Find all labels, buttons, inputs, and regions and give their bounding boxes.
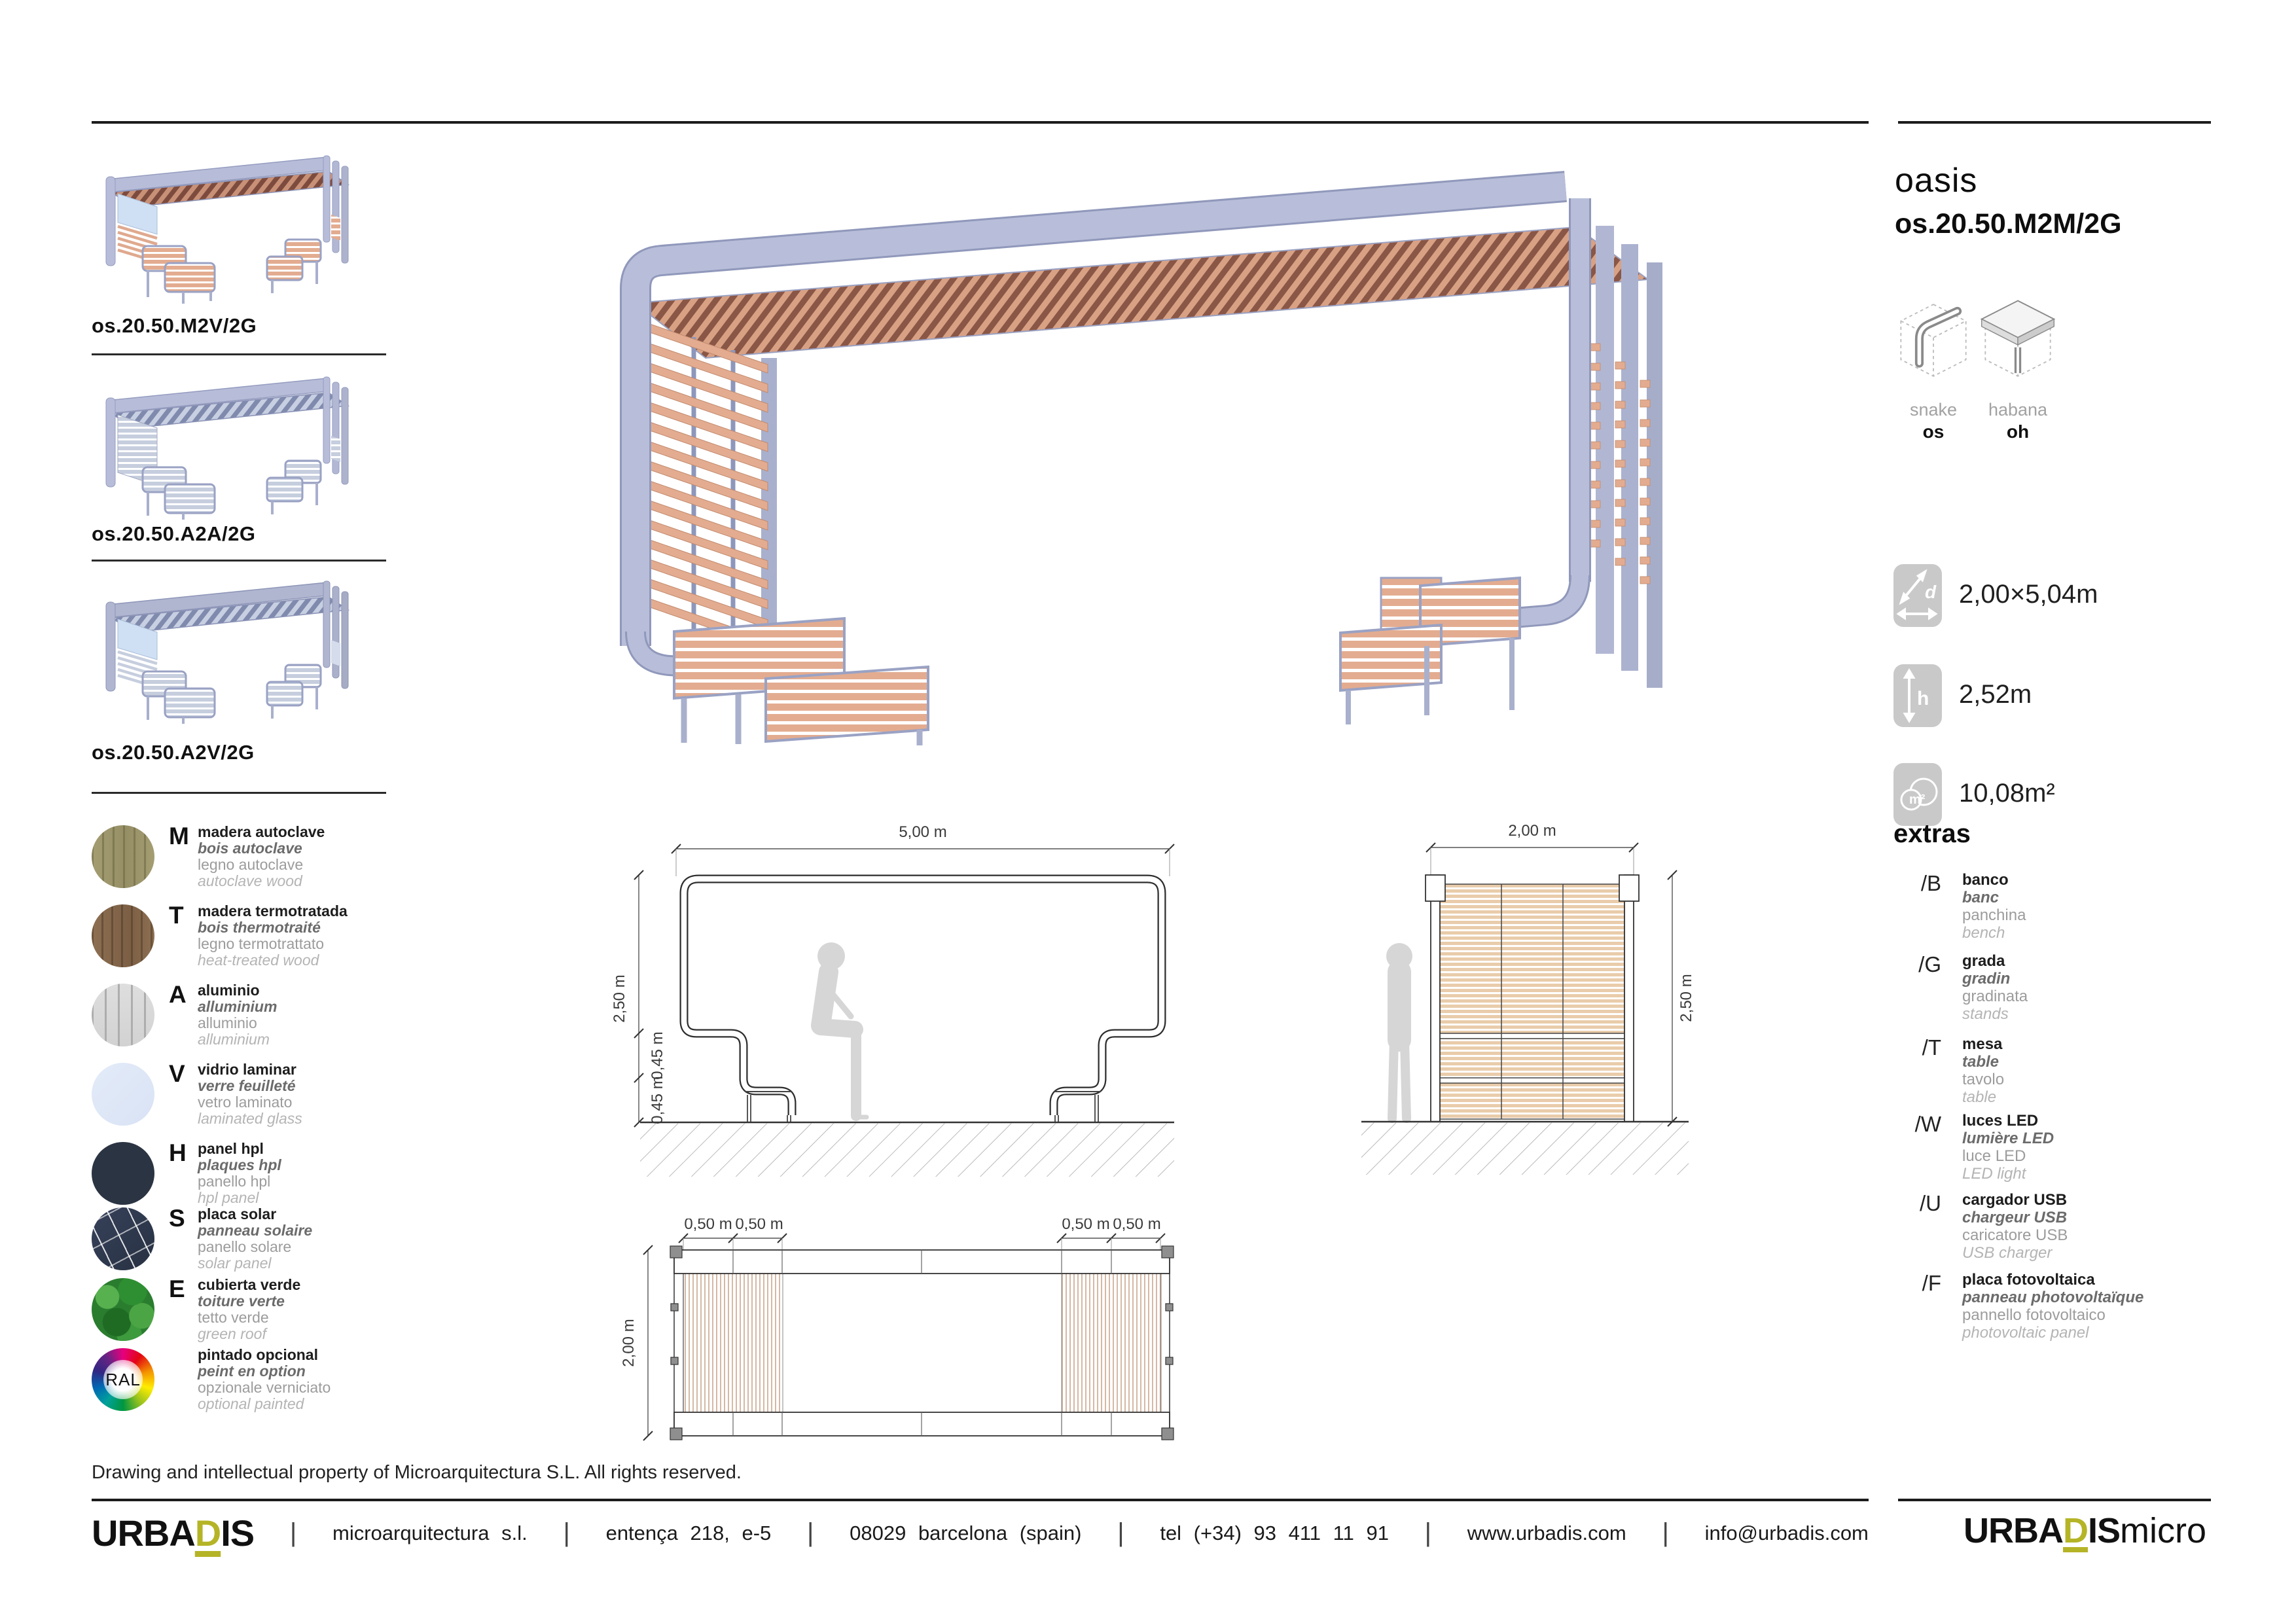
material-ral-paint: RAL pintado opcional peint en option opz… <box>92 1348 458 1414</box>
family-snake-code: os <box>1893 421 1973 442</box>
plan-slat-zone-right <box>1062 1274 1161 1412</box>
side-width-dim: 2,00 m <box>1508 822 1556 840</box>
family-snake-name: snake <box>1893 400 1973 420</box>
variant-thumbnail-a2v <box>92 568 386 728</box>
family-habana: habana oh <box>1978 296 2058 442</box>
datasheet-page: os.20.50.M2V/2G <box>0 0 2296 1623</box>
variant-rule-2 <box>92 560 386 562</box>
extra-line: USB charger <box>1962 1244 2068 1262</box>
footer-separator: | <box>1662 1518 1668 1548</box>
extra-line: panchina <box>1962 906 2026 924</box>
material-line: plaques hpl <box>198 1157 281 1173</box>
footer-city: 08029 barcelona (spain) <box>850 1522 1081 1545</box>
footer-rule-right <box>1898 1499 2211 1501</box>
footer-address: entença 218, e-5 <box>606 1522 772 1545</box>
extra-line: caricatore USB <box>1962 1226 2068 1244</box>
material-line: pintado opcional <box>198 1347 331 1363</box>
variant-render-a2v-image <box>92 568 386 725</box>
extra-line: banc <box>1962 889 2026 906</box>
wood-heat-swatch <box>92 904 154 967</box>
front-elevation-drawing: 5,00 m 2,50 m 0,45 m 0,45 m <box>602 821 1191 1181</box>
render-left-slats <box>650 324 768 648</box>
material-line: green roof <box>198 1326 300 1342</box>
material-aluminium: A aluminio alluminium alluminio allumini… <box>92 984 458 1049</box>
material-laminated-glass: V vidrio laminar verre feuilleté vetro l… <box>92 1063 458 1128</box>
footer-separator: | <box>1425 1518 1431 1548</box>
front-frame-outline <box>684 879 1162 1115</box>
extra-photovoltaic-code: /F <box>1885 1271 1941 1296</box>
extra-line: LED light <box>1962 1165 2054 1183</box>
extra-line: gradinata <box>1962 988 2028 1005</box>
footer-rule-main <box>92 1499 1869 1501</box>
spec-footprint-value: 2,00×5,04m <box>1959 580 2098 609</box>
side-slat-panel-lower <box>1440 1083 1624 1119</box>
material-line: hpl panel <box>198 1190 281 1206</box>
material-line: madera termotratada <box>198 903 348 919</box>
top-rule-right <box>1898 121 2211 124</box>
variant-label-m2v: os.20.50.M2V/2G <box>92 314 257 338</box>
extra-line: chargeur USB <box>1962 1209 2068 1226</box>
material-line: cubierta verde <box>198 1277 300 1293</box>
front-height-dim: 2,50 m <box>611 974 628 1022</box>
footer-website: www.urbadis.com <box>1467 1522 1626 1545</box>
material-line: optional painted <box>198 1396 331 1412</box>
plan-depth-dim: 2,00 m <box>620 1319 637 1366</box>
side-elevation-drawing: 2,00 m 2,50 m <box>1342 821 1708 1181</box>
front-width-dim: 5,00 m <box>899 823 946 841</box>
front-step1-dim: 0,45 m <box>649 1031 666 1079</box>
footer-company: microarquitectura s.l. <box>332 1522 528 1545</box>
material-solar: S placa solar panneau solaire panello so… <box>92 1207 458 1273</box>
dimensions-icon: d <box>1893 564 1942 627</box>
green-roof-swatch <box>92 1278 154 1341</box>
material-line: solar panel <box>198 1255 312 1272</box>
extra-line: placa fotovoltaica <box>1962 1271 2144 1289</box>
material-line: heat-treated wood <box>198 952 348 969</box>
material-heat-treated-wood: T madera termotratada bois thermotraité … <box>92 904 458 970</box>
variant-rule-3 <box>92 792 386 794</box>
family-habana-code: oh <box>1978 421 2058 442</box>
ral-wheel-swatch: RAL <box>92 1348 154 1411</box>
material-line: panello hpl <box>198 1173 281 1190</box>
material-line: alluminium <box>198 999 277 1015</box>
snake-cube-icon <box>1893 296 1973 394</box>
height-icon: h <box>1893 664 1942 727</box>
footer-separator: | <box>290 1518 296 1548</box>
spec-height-value: 2,52m <box>1959 680 2032 709</box>
material-line: bois autoclave <box>198 840 325 857</box>
extra-line: banco <box>1962 871 2026 889</box>
extra-line: cargador USB <box>1962 1191 2068 1209</box>
variant-render-m2v-image <box>92 136 386 308</box>
glass-swatch <box>92 1063 154 1126</box>
side-slat-panel-upper <box>1440 884 1624 1033</box>
extra-line: panneau photovoltaïque <box>1962 1289 2144 1306</box>
extra-line: luces LED <box>1962 1112 2054 1130</box>
extra-line: mesa <box>1962 1035 2004 1053</box>
extra-table-code: /T <box>1885 1035 1941 1060</box>
plan-mod3-dim: 0,50 m <box>1062 1219 1109 1233</box>
extra-line: lumière LED <box>1962 1130 2054 1147</box>
material-line: tetto verde <box>198 1310 300 1326</box>
material-line: alluminio <box>198 1015 277 1031</box>
material-line: legno autoclave <box>198 857 325 873</box>
extra-stands-code: /G <box>1885 952 1941 977</box>
extra-line: table <box>1962 1088 2004 1106</box>
extra-usb-code: /U <box>1885 1191 1941 1216</box>
solar-swatch <box>92 1207 154 1270</box>
extra-line: stands <box>1962 1005 2028 1023</box>
svg-text:m²: m² <box>1909 793 1926 807</box>
habana-cube-icon <box>1978 296 2058 394</box>
ground-hatch <box>1361 1122 1689 1175</box>
material-line: vidrio laminar <box>198 1061 302 1078</box>
extra-line: grada <box>1962 952 2028 970</box>
material-line: panello solare <box>198 1239 312 1255</box>
front-step2-dim: 0,45 m <box>649 1076 666 1124</box>
main-product-render <box>569 128 1741 746</box>
render-right-bench <box>1340 578 1520 724</box>
variant-thumbnail-m2v <box>92 136 386 311</box>
footer-separator: | <box>807 1518 814 1548</box>
plan-mod1-dim: 0,50 m <box>684 1219 732 1233</box>
top-rule-main <box>92 121 1869 124</box>
family-snake: snake os <box>1893 296 1973 442</box>
variant-label-a2v: os.20.50.A2V/2G <box>92 741 255 764</box>
area-icon: m² <box>1893 763 1942 826</box>
side-height-dim: 2,50 m <box>1677 974 1695 1022</box>
urbadis-micro-logo: URBADISmicro <box>1964 1510 2206 1551</box>
material-line: madera autoclave <box>198 824 325 840</box>
extra-line: tavolo <box>1962 1071 2004 1088</box>
extras-heading: extras <box>1893 819 1971 849</box>
render-left-bench <box>674 618 928 745</box>
ground-hatch <box>640 1123 1174 1177</box>
material-line: toiture verte <box>198 1293 300 1310</box>
footer-contact-bar: URBADIS | microarquitectura s.l. | enten… <box>92 1512 1869 1554</box>
material-line: placa solar <box>198 1206 312 1222</box>
extra-line: luce LED <box>1962 1147 2054 1165</box>
extra-line: photovoltaic panel <box>1962 1324 2144 1342</box>
side-slat-panel-mid <box>1440 1039 1624 1078</box>
ral-label: RAL <box>105 1370 141 1390</box>
extra-led-code: /W <box>1885 1112 1941 1137</box>
copyright-text: Drawing and intellectual property of Mic… <box>92 1462 742 1484</box>
extra-line: table <box>1962 1053 2004 1071</box>
material-line: verre feuilleté <box>198 1078 302 1094</box>
family-habana-name: habana <box>1978 400 2058 420</box>
footer-email: info@urbadis.com <box>1705 1522 1869 1545</box>
footer-phone: tel (+34) 93 411 11 91 <box>1160 1522 1389 1545</box>
variant-thumbnail-a2a <box>92 364 386 524</box>
plan-mod4-dim: 0,50 m <box>1113 1219 1160 1233</box>
plan-slat-zone-left <box>683 1274 783 1412</box>
aluminium-swatch <box>92 984 154 1046</box>
urbadis-logo: URBADIS <box>92 1512 254 1554</box>
material-line: peint en option <box>198 1363 331 1380</box>
extra-bench-code: /B <box>1885 871 1941 896</box>
footer-separator: | <box>1117 1518 1124 1548</box>
standing-person-silhouette <box>1386 943 1412 1118</box>
material-line: autoclave wood <box>198 873 325 889</box>
material-line: legno termotrattato <box>198 936 348 952</box>
svg-text:d: d <box>1925 582 1937 602</box>
product-title: oasis <box>1895 161 1977 200</box>
wood-autoclave-swatch <box>92 825 154 888</box>
material-line: panel hpl <box>198 1141 281 1157</box>
material-autoclave-wood: M madera autoclave bois autoclave legno … <box>92 825 458 891</box>
variant-label-a2a: os.20.50.A2A/2G <box>92 522 255 546</box>
material-green-roof: E cubierta verde toiture verte tetto ver… <box>92 1278 458 1344</box>
material-line: opzionale verniciato <box>198 1380 331 1396</box>
seated-person-silhouette <box>817 942 867 1117</box>
material-hpl: H panel hpl plaques hpl panello hpl hpl … <box>92 1142 458 1207</box>
extra-line: pannello fotovoltaico <box>1962 1306 2144 1324</box>
footer-separator: | <box>563 1518 569 1548</box>
material-line: laminated glass <box>198 1111 302 1127</box>
hpl-swatch <box>92 1142 154 1205</box>
material-line: aluminio <box>198 982 277 999</box>
variant-rule-1 <box>92 353 386 355</box>
variant-render-a2a-image <box>92 364 386 521</box>
extra-line: gradin <box>1962 970 2028 988</box>
extra-line: bench <box>1962 924 2026 942</box>
svg-text:h: h <box>1917 688 1929 709</box>
material-line: alluminium <box>198 1031 277 1048</box>
plan-mod2-dim: 0,50 m <box>735 1219 783 1233</box>
product-model: os.20.50.M2M/2G <box>1895 208 2122 240</box>
spec-area-value: 10,08m² <box>1959 779 2055 808</box>
material-line: bois thermotraité <box>198 919 348 936</box>
plan-drawing: 0,50 m 0,50 m 0,50 m 0,50 m 2,00 m <box>602 1219 1191 1467</box>
material-line: panneau solaire <box>198 1222 312 1239</box>
material-line: vetro laminato <box>198 1094 302 1111</box>
